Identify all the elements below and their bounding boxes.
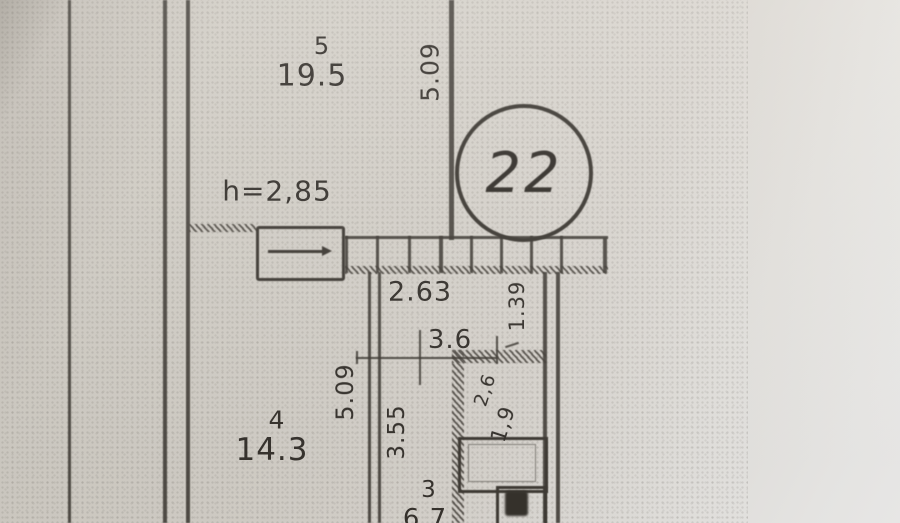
dim-hall-height: 3.55 (384, 404, 410, 459)
wall-right-exterior-b (556, 272, 560, 523)
apartment-number-circle: 22 (455, 104, 593, 242)
band-divider (603, 238, 607, 273)
band-divider (500, 236, 503, 273)
wall-left-outer (68, 0, 71, 523)
dim-tick (419, 330, 421, 385)
dim-mid-width: 3.6 (428, 325, 472, 355)
room3-number: 3 (421, 477, 437, 503)
wall-hatched-left-segment (189, 224, 257, 232)
room5-number: 5 (314, 32, 330, 60)
dim-tick (496, 336, 498, 364)
dim-tick (356, 351, 358, 364)
wall-room4-right-b (378, 272, 381, 523)
band-divider (376, 236, 379, 273)
band-bottom-line (345, 266, 608, 274)
toilet-fixture (505, 491, 528, 516)
band-divider (470, 236, 473, 273)
room5-area: 19.5 (277, 59, 348, 94)
closet-arrow-head (322, 246, 332, 256)
wall-left-double-b (186, 0, 190, 523)
band-divider (408, 236, 411, 273)
ceiling-height-note: h=2,85 (222, 175, 332, 208)
wall-left-double-a (163, 0, 167, 523)
dim-upper-width: 2.63 (388, 277, 452, 308)
band-top-line (345, 236, 608, 239)
floor-plan-drawing: 22 5 19.5 4 14.3 3 6.7 h=2,85 5.09 2.63 … (0, 0, 900, 523)
band-divider (439, 236, 443, 273)
wall-room4-right-a (368, 272, 371, 523)
apartment-number: 22 (485, 141, 562, 206)
closet-arrow-line (268, 250, 324, 253)
wall-room5-right (449, 0, 454, 240)
room4-area: 14.3 (235, 432, 308, 468)
dim-line-3-6 (356, 357, 497, 359)
dim-room5-height: 5.09 (416, 42, 445, 102)
dim-tick-dash (505, 342, 519, 348)
room3-area-clipped: 6.7 (403, 504, 447, 523)
dim-room4-height: 5.09 (331, 363, 359, 420)
room4-number: 4 (269, 406, 286, 435)
band-divider (560, 236, 563, 273)
bathtub-inner-line (468, 444, 536, 482)
dim-bath-height: 1.39 (505, 281, 529, 332)
photographed-floor-plan: 22 5 19.5 4 14.3 3 6.7 h=2,85 5.09 2.63 … (0, 0, 900, 523)
band-divider (345, 236, 348, 273)
